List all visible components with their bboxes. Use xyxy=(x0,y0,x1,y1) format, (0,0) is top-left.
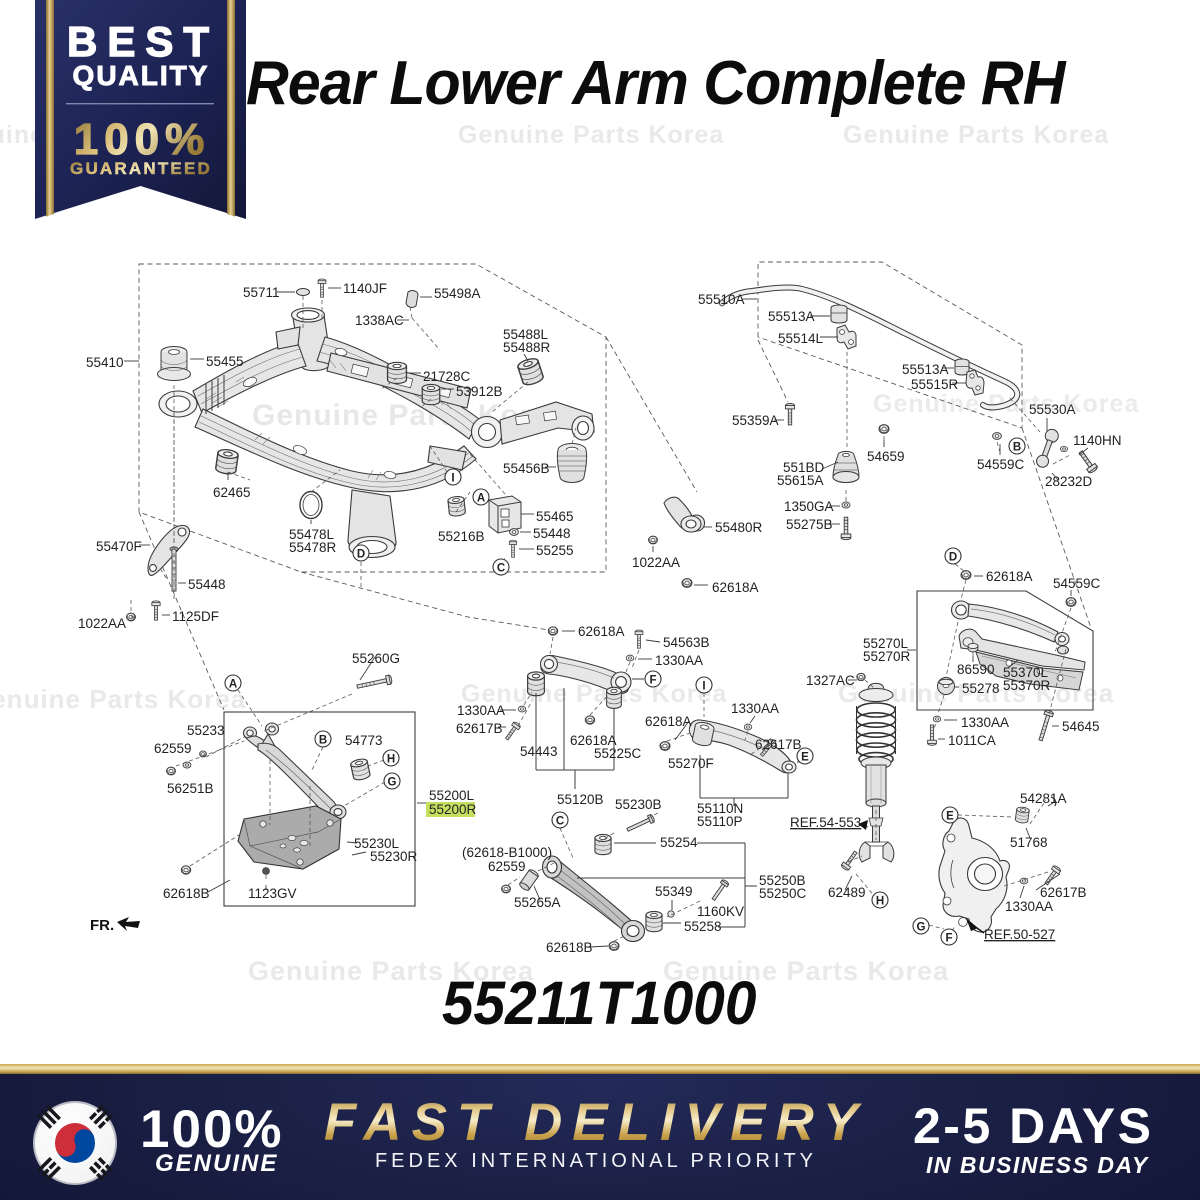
svg-text:55448: 55448 xyxy=(533,526,571,541)
svg-text:FR.: FR. xyxy=(90,917,114,934)
svg-text:55513A: 55513A xyxy=(768,309,815,324)
svg-text:54559C: 54559C xyxy=(977,457,1025,472)
svg-text:55456B: 55456B xyxy=(503,461,550,476)
svg-text:55254: 55254 xyxy=(660,835,698,850)
svg-text:51768: 51768 xyxy=(1010,835,1048,850)
svg-text:1022AA: 1022AA xyxy=(632,555,680,570)
svg-text:62618A: 62618A xyxy=(986,569,1033,584)
svg-text:1011CA: 1011CA xyxy=(948,733,996,748)
svg-text:62618A: 62618A xyxy=(578,624,625,639)
svg-text:A: A xyxy=(229,679,237,691)
svg-text:1330AA: 1330AA xyxy=(655,653,703,668)
svg-text:56251B: 56251B xyxy=(167,781,214,796)
svg-text:55359A: 55359A xyxy=(732,413,779,428)
svg-text:55120B: 55120B xyxy=(557,792,604,807)
svg-text:B: B xyxy=(1013,442,1021,454)
svg-text:55480R: 55480R xyxy=(715,520,763,535)
svg-text:86590: 86590 xyxy=(957,662,995,677)
svg-text:A: A xyxy=(477,493,485,505)
svg-text:Genuine Parts Korea: Genuine Parts Korea xyxy=(458,121,724,149)
svg-text:55255: 55255 xyxy=(536,543,574,558)
svg-text:1140HN: 1140HN xyxy=(1073,433,1122,448)
svg-text:1338AC: 1338AC xyxy=(355,313,404,328)
svg-text:Genuine Parts Korea: Genuine Parts Korea xyxy=(0,684,246,714)
svg-text:62465: 62465 xyxy=(213,485,251,500)
svg-text:55465: 55465 xyxy=(536,509,574,524)
svg-text:55233: 55233 xyxy=(187,723,225,738)
svg-text:B: B xyxy=(319,735,327,747)
svg-text:62559: 62559 xyxy=(154,741,192,756)
svg-text:1330AA: 1330AA xyxy=(731,701,779,716)
svg-text:55410: 55410 xyxy=(86,355,124,370)
svg-text:D: D xyxy=(949,552,957,564)
svg-text:62618A: 62618A xyxy=(645,714,692,729)
svg-text:62618B: 62618B xyxy=(546,940,593,955)
svg-text:55349: 55349 xyxy=(655,884,693,899)
svg-text:55455: 55455 xyxy=(206,354,244,369)
svg-text:55515R: 55515R xyxy=(911,377,959,392)
svg-text:D: D xyxy=(357,549,365,561)
svg-text:C: C xyxy=(497,563,505,575)
svg-text:55250C: 55250C xyxy=(759,886,807,901)
svg-text:1160KV: 1160KV xyxy=(697,904,744,919)
svg-text:55448: 55448 xyxy=(188,577,226,592)
svg-text:55513A: 55513A xyxy=(902,362,949,377)
svg-text:55225C: 55225C xyxy=(594,746,642,761)
svg-text:REF.50-527: REF.50-527 xyxy=(984,927,1055,942)
svg-text:55530A: 55530A xyxy=(1029,402,1076,417)
svg-text:1125DF: 1125DF xyxy=(172,609,219,624)
svg-text:55615A: 55615A xyxy=(777,473,824,488)
svg-text:55498A: 55498A xyxy=(434,286,481,301)
svg-text:1330AA: 1330AA xyxy=(961,715,1009,730)
svg-text:C: C xyxy=(556,816,564,828)
svg-text:F: F xyxy=(649,675,656,687)
svg-text:62617B: 62617B xyxy=(755,737,802,752)
svg-text:1330AA: 1330AA xyxy=(457,703,505,718)
svg-text:55514L: 55514L xyxy=(778,331,824,346)
svg-text:G: G xyxy=(917,922,926,934)
svg-text:62618B: 62618B xyxy=(163,886,210,901)
svg-text:(62618-B1000): (62618-B1000) xyxy=(462,845,552,860)
svg-text:62559: 62559 xyxy=(488,859,526,874)
svg-text:54773: 54773 xyxy=(345,733,383,748)
svg-text:21728C: 21728C xyxy=(423,369,471,384)
svg-text:55488R: 55488R xyxy=(503,340,551,355)
svg-text:55258: 55258 xyxy=(684,919,722,934)
svg-text:55200R: 55200R xyxy=(429,802,477,817)
svg-text:28232D: 28232D xyxy=(1045,474,1093,489)
svg-text:55230R: 55230R xyxy=(370,849,418,864)
svg-text:55270F: 55270F xyxy=(668,756,714,771)
svg-text:54645: 54645 xyxy=(1062,719,1100,734)
svg-text:1350GA: 1350GA xyxy=(784,499,834,514)
svg-text:54563B: 54563B xyxy=(663,635,710,650)
svg-text:55216B: 55216B xyxy=(438,529,485,544)
svg-text:1327AC: 1327AC xyxy=(806,673,855,688)
svg-text:55278: 55278 xyxy=(962,681,1000,696)
svg-text:G: G xyxy=(388,777,397,789)
svg-text:REF.54-553: REF.54-553 xyxy=(790,815,861,830)
svg-text:62617B: 62617B xyxy=(1040,885,1087,900)
svg-text:54443: 54443 xyxy=(520,744,558,759)
svg-text:H: H xyxy=(876,896,884,908)
svg-text:54281A: 54281A xyxy=(1020,791,1067,806)
svg-text:1330AA: 1330AA xyxy=(1005,899,1053,914)
svg-text:55370R: 55370R xyxy=(1003,678,1051,693)
svg-text:55110P: 55110P xyxy=(697,814,743,829)
svg-text:55270R: 55270R xyxy=(863,649,911,664)
svg-text:H: H xyxy=(387,754,395,766)
svg-text:55265A: 55265A xyxy=(514,895,561,910)
svg-text:I: I xyxy=(451,473,454,485)
svg-text:55200L: 55200L xyxy=(429,788,475,803)
svg-text:55275B: 55275B xyxy=(786,517,833,532)
svg-text:1140JF: 1140JF xyxy=(343,281,387,296)
svg-text:GUARANTEED: GUARANTEED xyxy=(70,159,212,178)
svg-text:I: I xyxy=(702,681,705,693)
svg-text:100%: 100% xyxy=(74,115,211,164)
svg-text:E: E xyxy=(801,752,809,764)
svg-text:Genuine Parts Korea: Genuine Parts Korea xyxy=(843,121,1109,149)
svg-text:QUALITY: QUALITY xyxy=(73,60,210,91)
svg-text:55260G: 55260G xyxy=(352,651,400,666)
svg-text:1022AA: 1022AA xyxy=(78,616,126,631)
svg-text:F: F xyxy=(945,933,952,945)
svg-text:55711: 55711 xyxy=(243,285,280,300)
svg-text:55230B: 55230B xyxy=(615,797,662,812)
svg-text:E: E xyxy=(946,811,954,823)
svg-text:55510A: 55510A xyxy=(698,292,745,307)
svg-text:55478R: 55478R xyxy=(289,540,337,555)
svg-text:54659: 54659 xyxy=(867,449,905,464)
svg-text:BEST: BEST xyxy=(67,18,219,65)
svg-text:53912B: 53912B xyxy=(456,384,503,399)
svg-text:62618A: 62618A xyxy=(712,580,759,595)
svg-text:55470F: 55470F xyxy=(96,539,142,554)
svg-text:1123GV: 1123GV xyxy=(248,886,297,901)
svg-text:62489: 62489 xyxy=(828,885,866,900)
svg-text:54559C: 54559C xyxy=(1053,576,1101,591)
svg-text:62617B: 62617B xyxy=(456,721,503,736)
